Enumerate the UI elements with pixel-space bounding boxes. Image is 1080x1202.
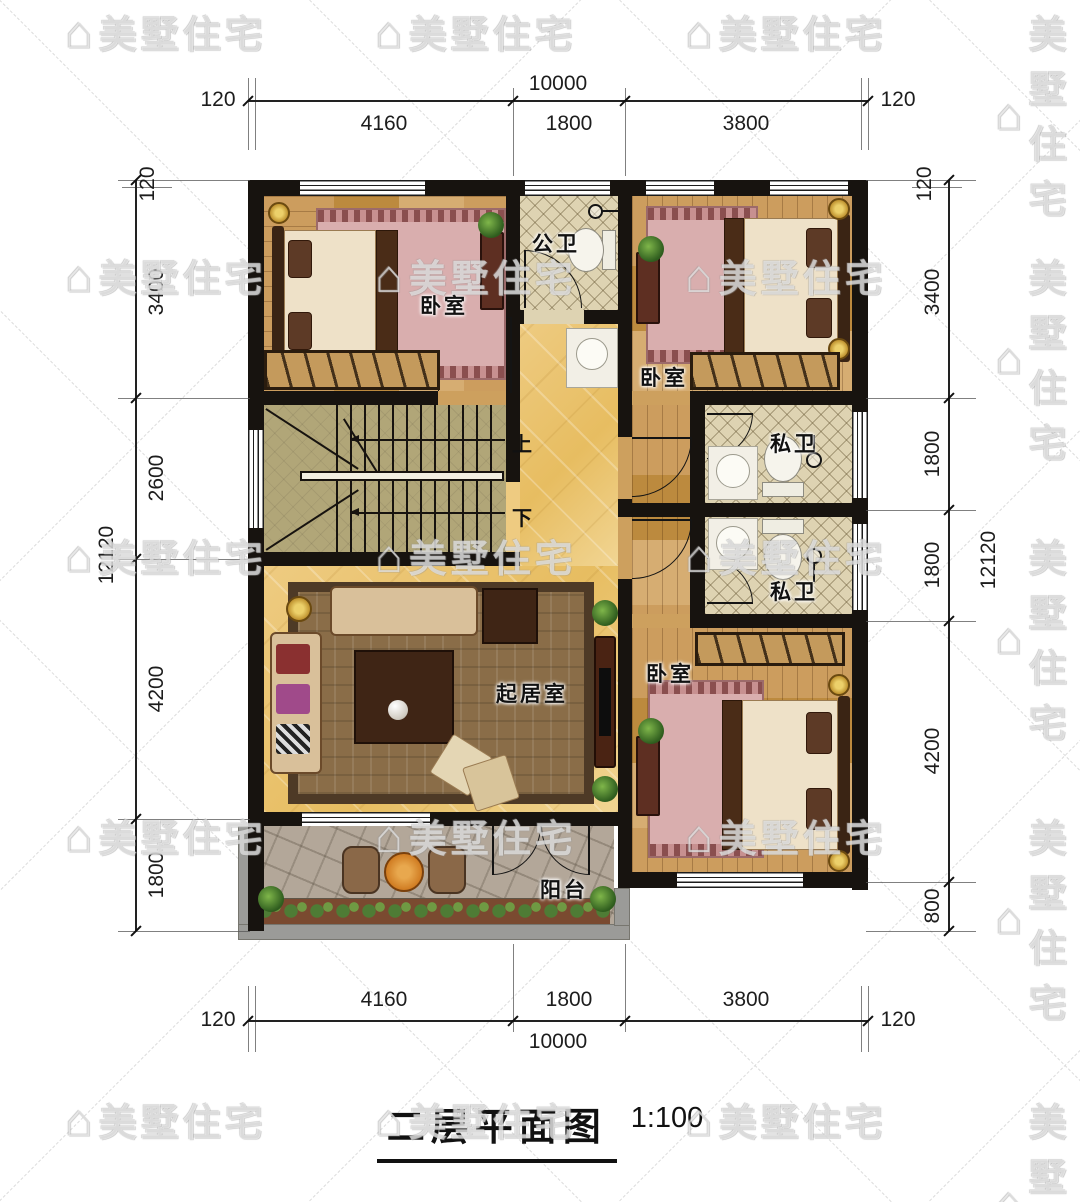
door-leaf-private-bath-upper — [707, 413, 753, 415]
dim-left-overall: 12120 — [95, 510, 119, 600]
wall-center-vertical-a — [618, 196, 632, 437]
potted-plant — [590, 886, 616, 912]
door-threshold — [438, 391, 506, 405]
dim-top-seg-2: 3800 — [696, 112, 796, 136]
dim-guide — [118, 398, 250, 399]
dim-top-overall: 10000 — [508, 72, 608, 96]
balcony-door-leaf-left — [492, 826, 494, 875]
dim-guide — [118, 559, 250, 560]
balcony-chair — [428, 846, 466, 894]
window-bedroom-tl — [300, 180, 425, 196]
door-leaf-private-bath-lower — [707, 602, 753, 604]
dim-bottom-offset-left: 120 — [192, 1008, 244, 1032]
page-title: 二层平面图 — [377, 1096, 617, 1163]
bed-blanket — [724, 218, 744, 358]
door-threshold — [618, 437, 632, 499]
window-bedroom-br — [677, 872, 803, 888]
dim-bottom-overall: 10000 — [508, 1030, 608, 1054]
dim-right-seg-3: 1800 — [921, 520, 945, 610]
dim-left-seg-4: 1800 — [145, 830, 169, 920]
dim-guide — [861, 986, 862, 1052]
shower-arm — [602, 210, 618, 212]
bed-pillow — [288, 312, 312, 350]
passage-threshold — [632, 391, 690, 405]
bed-blanket — [722, 700, 742, 850]
wall-center-vertical-b — [618, 499, 632, 517]
dim-guide — [866, 510, 976, 511]
bed-headboard — [838, 696, 850, 854]
nightstand-lamp — [828, 198, 850, 220]
sofa-cushion — [276, 684, 310, 714]
dim-guide — [118, 931, 250, 932]
dim-guide — [866, 621, 976, 622]
window-stairwell — [248, 430, 264, 528]
potted-plant — [592, 600, 618, 626]
stair-label-down: 下 — [512, 502, 532, 531]
wardrobe — [695, 632, 845, 666]
room-label-private-bath-upper: 私卫 — [770, 428, 818, 458]
stair-label-up: 上 — [512, 428, 532, 457]
dim-right-overall: 12120 — [977, 515, 1001, 605]
dim-left-seg-2: 2600 — [145, 433, 169, 523]
dresser — [480, 232, 504, 310]
dim-top-offset-left: 120 — [192, 88, 244, 112]
stair-arrow-up — [352, 439, 505, 441]
stair-arrow-down — [352, 512, 505, 514]
potted-plant — [638, 718, 664, 744]
room-label-public-bath: 公卫 — [532, 228, 580, 258]
window-private-bath-upper — [852, 412, 868, 498]
wall-stair-bottom — [248, 552, 520, 566]
potted-plant — [478, 212, 504, 238]
dim-guide — [868, 78, 869, 150]
room-label-bedroom-tr: 卧室 — [640, 362, 688, 392]
bed-pillow — [806, 228, 832, 268]
dim-left-seg-0: 120 — [136, 139, 160, 229]
tv-screen — [599, 668, 611, 736]
dim-right-seg-1: 3400 — [921, 247, 945, 337]
balcony-door-leaf-right — [588, 826, 590, 875]
wall-bath-divider — [632, 503, 852, 517]
window-private-bath-lower — [852, 524, 868, 610]
dim-bottom-seg-0: 4160 — [334, 988, 434, 1012]
decor-sphere — [388, 700, 408, 720]
nightstand-lamp — [268, 202, 290, 224]
nightstand-lamp — [828, 674, 850, 696]
bed-headboard — [272, 226, 284, 362]
door-leaf-suite-upper — [632, 437, 692, 439]
wall-center-vertical-c — [618, 579, 632, 874]
dim-line-top — [248, 100, 868, 102]
dim-guide — [866, 398, 976, 399]
dim-guide — [118, 819, 250, 820]
toilet-tank — [602, 230, 616, 270]
bed-pillow — [288, 240, 312, 278]
room-label-private-bath-lower: 私卫 — [770, 576, 818, 606]
wall-bedroom-tr-bottom — [690, 391, 852, 405]
potted-plant — [638, 236, 664, 262]
dim-top-seg-0: 4160 — [334, 112, 434, 136]
bed-pillow — [806, 298, 832, 338]
dim-bottom-offset-right: 120 — [872, 1008, 924, 1032]
wall-bath-lower-bottom — [690, 614, 852, 628]
balcony-railing-right — [614, 888, 630, 926]
window-public-bath — [525, 180, 610, 196]
wardrobe — [264, 350, 440, 390]
coffee-table — [354, 650, 454, 744]
window-bedroom-tr-b — [770, 180, 848, 196]
room-label-balcony: 阳台 — [540, 874, 588, 904]
room-label-bedroom-br: 卧室 — [646, 658, 694, 688]
dim-left-seg-3: 4200 — [145, 644, 169, 734]
side-table — [482, 588, 538, 644]
balcony-railing-bottom — [238, 924, 630, 940]
shower-head — [588, 204, 603, 219]
dim-guide — [255, 986, 256, 1052]
title-scale: 1:100 — [631, 1096, 704, 1135]
balcony-table — [384, 852, 424, 892]
dim-top-offset-right: 120 — [872, 88, 924, 112]
dim-bottom-seg-1: 1800 — [519, 988, 619, 1012]
wardrobe — [690, 352, 840, 390]
dim-right-seg-0: 120 — [913, 139, 937, 229]
title-block: 二层平面图1:100 — [0, 1096, 1080, 1163]
bed-pillow — [806, 788, 832, 830]
door-leaf-suite-lower — [632, 519, 692, 521]
potted-plant — [592, 776, 618, 802]
toilet-tank — [762, 482, 804, 497]
door-threshold — [524, 310, 584, 324]
stair-center-rail — [300, 471, 504, 481]
sofa-cushion — [276, 724, 310, 754]
shower-head — [806, 548, 822, 564]
nightstand-lamp — [828, 850, 850, 872]
dim-bottom-seg-2: 3800 — [696, 988, 796, 1012]
dresser — [636, 736, 660, 816]
door-threshold — [618, 517, 632, 579]
room-label-living-room: 起居室 — [496, 678, 568, 708]
potted-plant — [258, 886, 284, 912]
toilet-bowl — [764, 534, 802, 580]
dim-right-seg-2: 1800 — [921, 409, 945, 499]
dim-guide — [255, 78, 256, 150]
sofa-top — [330, 586, 478, 636]
room-label-bedroom-tl: 卧室 — [420, 290, 468, 320]
window-bedroom-tr-a — [646, 180, 714, 196]
bed-blanket — [376, 230, 398, 360]
passage-threshold — [632, 614, 690, 628]
door-leaf-public-bath — [524, 250, 526, 308]
rug-fringe — [318, 210, 504, 222]
dim-line-bottom — [248, 1020, 868, 1022]
dim-guide — [861, 78, 862, 150]
dim-top-seg-1: 1800 — [519, 112, 619, 136]
bed-pillow — [806, 712, 832, 754]
balcony-chair — [342, 846, 380, 894]
dresser — [636, 252, 660, 324]
dim-right-seg-5: 800 — [921, 861, 945, 951]
floor-plan-canvas: 卧室 公卫 卧室 私卫 私卫 起居室 卧室 阳台 上 下 10000 120 1… — [0, 0, 1080, 1202]
sofa-cushion — [276, 644, 310, 674]
window-living-room — [302, 812, 430, 826]
dim-guide — [248, 78, 249, 150]
toilet-tank — [762, 519, 804, 534]
dim-right-seg-4: 4200 — [921, 706, 945, 796]
door-leaf-bedroom-tl — [510, 317, 512, 393]
floor-lamp — [286, 596, 312, 622]
sink-basin — [576, 338, 608, 370]
wall-bedroom-tl-bottom — [264, 391, 438, 405]
dim-line-right — [948, 180, 950, 931]
sink-basin — [716, 526, 750, 560]
sink-basin — [716, 454, 750, 488]
wall-public-bath-bottom-a — [520, 310, 524, 324]
dim-left-seg-1: 3400 — [145, 247, 169, 337]
